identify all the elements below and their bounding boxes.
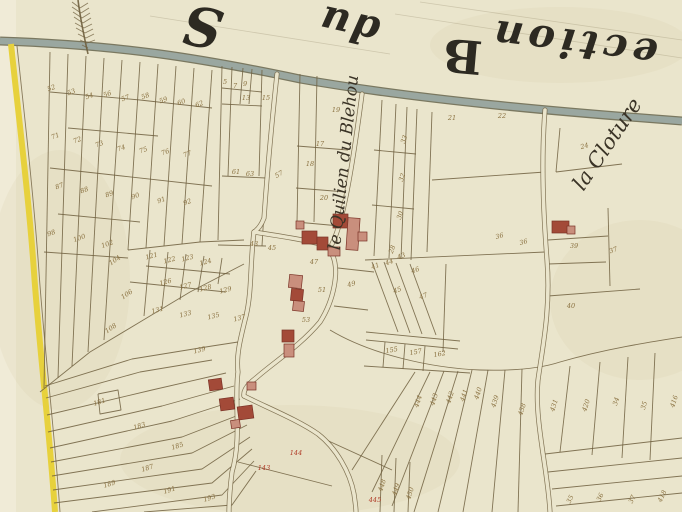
parcel-number: 40: [566, 302, 575, 310]
parcel-number: 39: [570, 242, 578, 250]
map-canvas: 5253545657585960627172737475767787888990…: [0, 0, 682, 512]
parcel-number: 51: [318, 286, 326, 294]
parcel-number: 15: [262, 94, 270, 102]
building: [290, 288, 303, 301]
building: [219, 397, 235, 411]
building: [284, 344, 294, 357]
cadastral-map-sheet: 5253545657585960627172737475767787888990…: [0, 0, 682, 512]
parcel-number: 53: [302, 316, 310, 324]
building: [293, 300, 305, 311]
building: [288, 274, 302, 288]
sheet-title-fragment: B: [441, 27, 484, 84]
parcel-number: 5: [223, 78, 227, 86]
parcel-number: 45: [267, 244, 276, 252]
building: [208, 378, 222, 391]
building: [247, 382, 256, 390]
building: [302, 231, 317, 244]
parcel-number: 13: [242, 94, 250, 102]
building: [358, 232, 367, 241]
building: [230, 419, 240, 428]
building: [552, 221, 569, 233]
parcel-number: 22: [497, 112, 506, 120]
parcel-number: 61: [232, 168, 240, 176]
parcel-number: 20: [319, 194, 328, 202]
building: [237, 405, 254, 420]
parcel-number: 43: [249, 240, 258, 248]
parcel-number: 144: [290, 449, 302, 457]
parcel-number: 18: [306, 160, 314, 168]
parcel-number: 143: [258, 464, 270, 472]
parcel-number: 21: [447, 114, 456, 122]
building: [296, 221, 304, 229]
building: [282, 330, 294, 342]
parcel-number: 445: [368, 496, 381, 504]
parcel-number: 17: [316, 140, 325, 148]
building: [567, 226, 575, 234]
parcel-number: 63: [246, 170, 254, 178]
parcel-number: 9: [243, 80, 247, 88]
parcel-number: 47: [309, 258, 319, 266]
